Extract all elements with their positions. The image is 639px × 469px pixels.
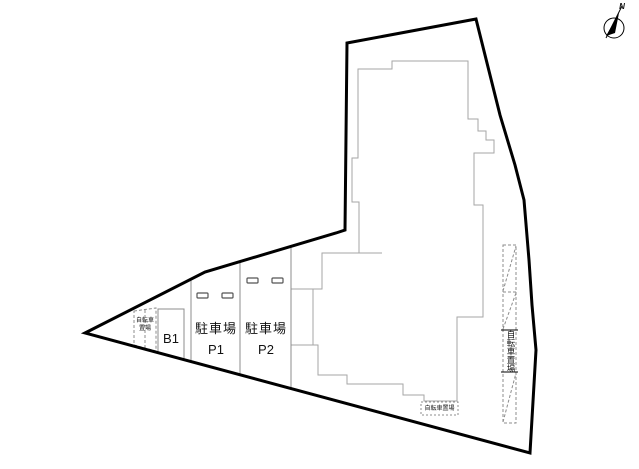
- bicycle-parking-left-label: 自転車 置場: [133, 317, 157, 333]
- north-label: N: [616, 2, 628, 11]
- bicycle-parking-bottom-label: 自転車置場: [421, 403, 458, 415]
- parking-p1-code: P1: [190, 342, 242, 357]
- parking-p1-title: 駐車場: [190, 318, 242, 337]
- building-internal-lines: [291, 253, 382, 345]
- site-plan-linework: [0, 0, 639, 469]
- wheel-stoppers-p1: [197, 293, 233, 298]
- b1-room-label: B1: [158, 331, 184, 346]
- site-plan-drawing: 駐車場 P1 駐車場 P2 B1 自転車 置場 自転車置場 自転車置場 N: [0, 0, 639, 469]
- bicycle-left-line2: 置場: [133, 325, 157, 333]
- bicycle-parking-right-label: 自転車置場: [503, 330, 517, 373]
- bicycle-left-line1: 自転車: [133, 317, 157, 325]
- wheel-stoppers-p2: [247, 278, 283, 283]
- parking-p2-title: 駐車場: [241, 318, 291, 337]
- parking-p2-code: P2: [241, 342, 291, 357]
